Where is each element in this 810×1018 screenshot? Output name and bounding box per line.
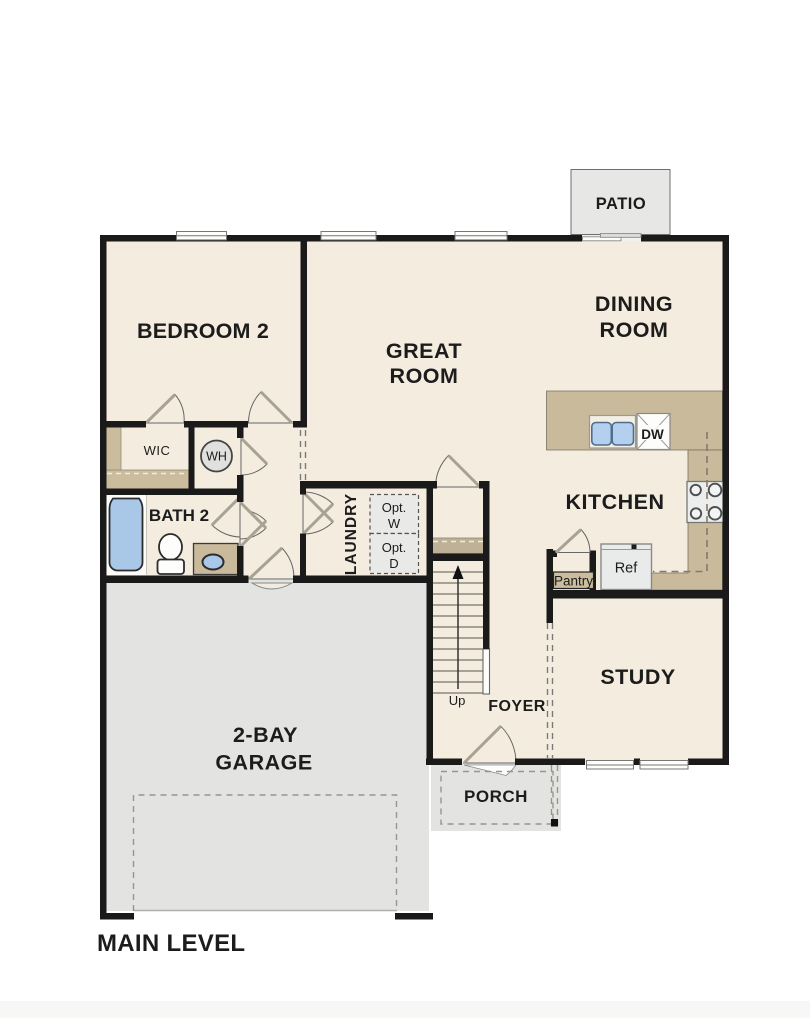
svg-text:ROOM: ROOM: [600, 318, 669, 342]
svg-text:GREAT: GREAT: [386, 339, 462, 363]
svg-text:2-BAY: 2-BAY: [233, 723, 298, 747]
svg-text:Pantry: Pantry: [554, 574, 593, 589]
svg-text:STUDY: STUDY: [600, 665, 675, 689]
svg-text:Up: Up: [449, 693, 466, 708]
svg-text:BATH 2: BATH 2: [149, 506, 209, 525]
svg-text:Ref: Ref: [615, 561, 639, 577]
svg-text:DW: DW: [641, 427, 664, 442]
svg-text:Opt.: Opt.: [382, 500, 407, 515]
svg-text:MAIN LEVEL: MAIN LEVEL: [97, 930, 245, 957]
svg-text:D: D: [389, 556, 398, 571]
svg-text:WIC: WIC: [144, 443, 171, 458]
svg-text:BEDROOM 2: BEDROOM 2: [137, 319, 269, 343]
svg-text:PORCH: PORCH: [464, 787, 528, 806]
svg-text:FOYER: FOYER: [488, 698, 546, 715]
svg-text:KITCHEN: KITCHEN: [565, 490, 664, 514]
svg-text:WH: WH: [206, 450, 227, 464]
svg-text:ROOM: ROOM: [390, 364, 459, 388]
svg-text:GARAGE: GARAGE: [215, 751, 312, 775]
svg-text:PATIO: PATIO: [596, 195, 646, 213]
svg-text:LAUNDRY: LAUNDRY: [343, 493, 360, 575]
svg-text:DINING: DINING: [595, 292, 673, 316]
svg-text:Opt.: Opt.: [382, 540, 407, 555]
svg-text:W: W: [388, 516, 401, 531]
